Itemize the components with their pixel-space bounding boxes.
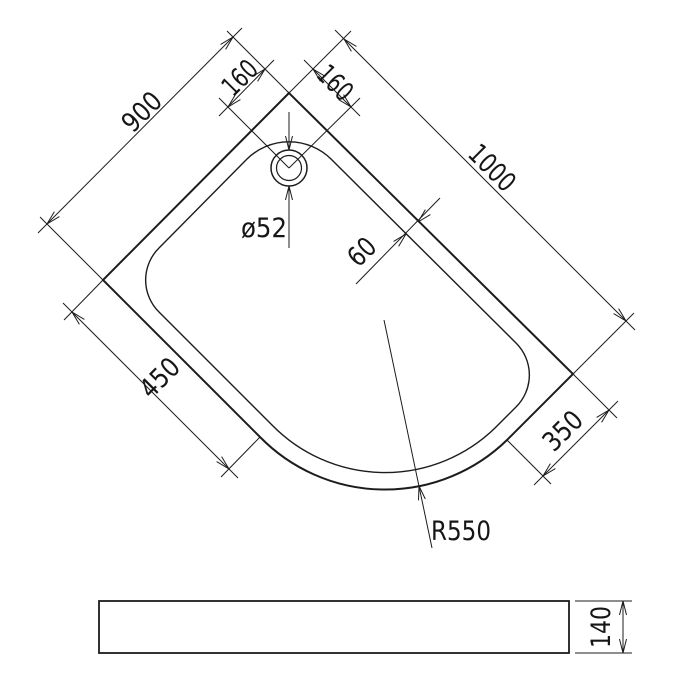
- side-profile-rect: [99, 601, 569, 653]
- dim-60-arrow-outer: [418, 210, 430, 222]
- ext-line-leftvertex-downleft: [64, 280, 103, 320]
- dim-160-right-label: 160: [310, 59, 359, 108]
- side-view: 140: [99, 601, 632, 653]
- ext-line-drain-upright: [289, 98, 360, 168]
- tray-outer-outline: [103, 93, 573, 490]
- dim-60-arrow-inner: [394, 234, 406, 246]
- ext-line-curveend-downright: [507, 440, 551, 484]
- dim-60-label: 60: [341, 231, 383, 273]
- ext-line-leftvertex-upleft: [40, 217, 103, 280]
- plan-dimension-labels: 900 160 160 1000 60 450 350 R550 ø52: [116, 54, 590, 547]
- tray-inner-outline: [146, 142, 530, 473]
- ext-line-drain-upleft: [219, 98, 289, 168]
- dim-drain-label: ø52: [241, 213, 287, 244]
- ext-line-curvestart-downleft: [221, 437, 260, 477]
- shower-tray-technical-drawing: 900 160 160 1000 60 450 350 R550 ø52 140: [0, 0, 684, 683]
- ext-line-rightvertex-upright: [573, 313, 634, 374]
- plan-view: [103, 93, 573, 490]
- dim-450-label: 450: [134, 352, 187, 405]
- dim-140-label: 140: [586, 606, 617, 648]
- dim-900-label: 900: [116, 86, 169, 139]
- dim-r550-label: R550: [431, 516, 491, 547]
- dim-r550-leader: [384, 320, 432, 548]
- dim-1000-label: 1000: [462, 138, 522, 198]
- dim-350-label: 350: [537, 405, 590, 458]
- drawing-sheet: 900 160 160 1000 60 450 350 R550 ø52 140: [0, 0, 684, 683]
- ext-line-rightvertex-downright: [573, 374, 617, 418]
